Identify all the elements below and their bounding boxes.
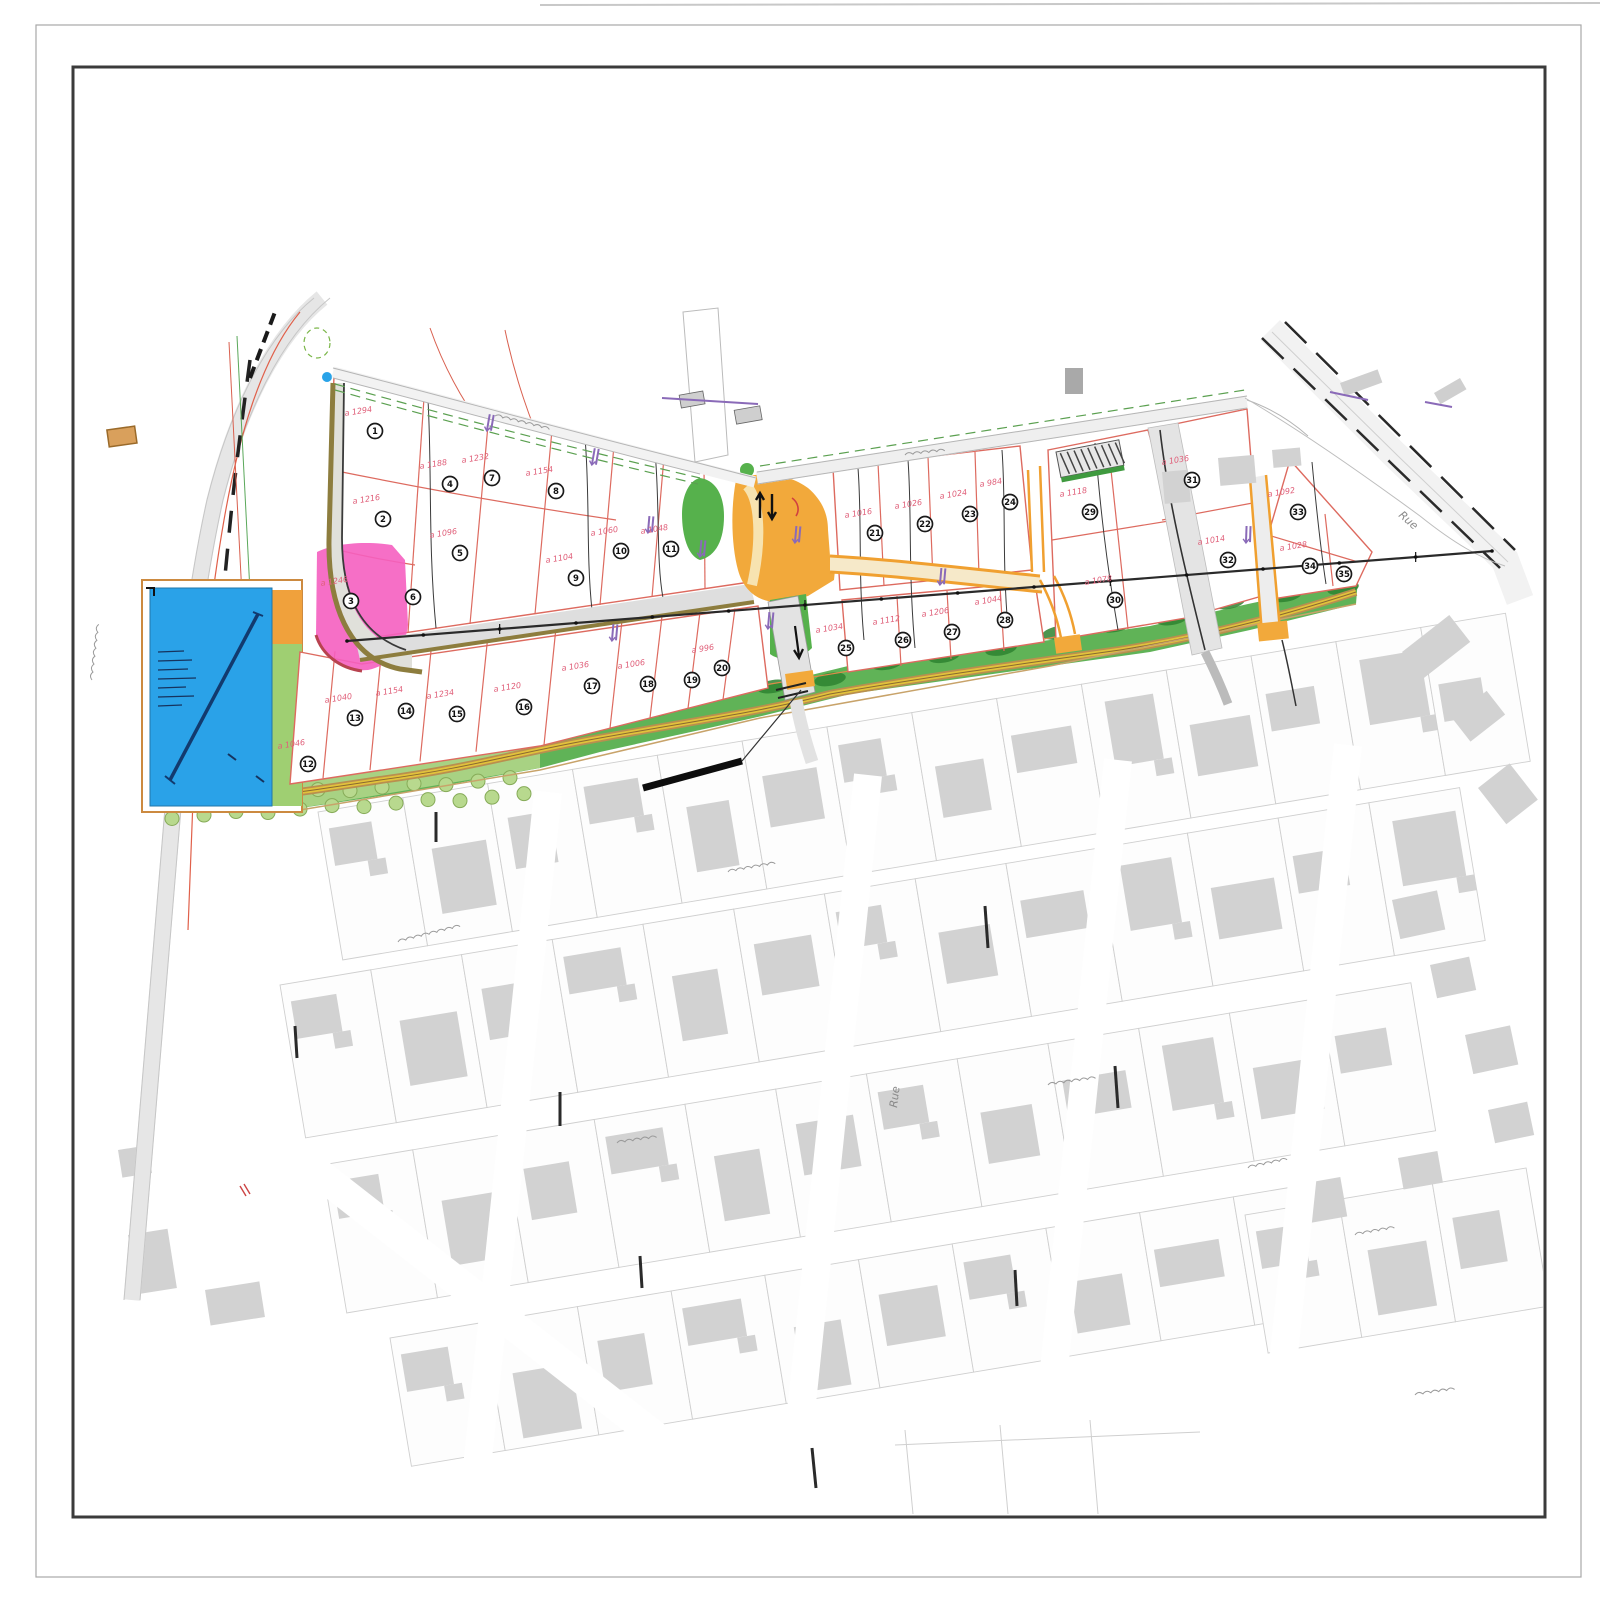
svg-text:20: 20 [716, 664, 728, 674]
svg-text:17: 17 [586, 682, 598, 692]
svg-text:6: 6 [410, 593, 416, 603]
svg-text:34: 34 [1304, 562, 1316, 572]
street-label-rue-2: Rue [1396, 508, 1421, 532]
lot-marker: 19 [685, 673, 700, 688]
svg-text:10: 10 [615, 547, 627, 557]
scan-artifact-line [540, 3, 1600, 5]
scanned-plan-sheet: Rue Rue a 12941a 12162a 12463a 11884a 10… [0, 0, 1600, 1600]
svg-text:24: 24 [1004, 498, 1016, 508]
svg-text:15: 15 [451, 710, 463, 720]
svg-text:22: 22 [919, 520, 931, 530]
svg-text:35: 35 [1338, 570, 1350, 580]
svg-text:4: 4 [447, 480, 453, 490]
north-strip-parcel [662, 308, 762, 462]
svg-text:30: 30 [1109, 596, 1121, 606]
svg-text:21: 21 [869, 529, 881, 539]
svg-text:3: 3 [348, 597, 354, 607]
svg-text:9: 9 [573, 574, 579, 584]
tree-symbol [304, 328, 330, 358]
svg-text:13: 13 [349, 714, 361, 724]
svg-text:32: 32 [1222, 556, 1234, 566]
culvert-symbol [107, 426, 137, 447]
svg-text:19: 19 [686, 676, 698, 686]
map-content: Rue Rue a 12941a 12162a 12463a 11884a 10… [90, 298, 1549, 1514]
svg-text:25: 25 [840, 644, 852, 654]
svg-text:14: 14 [400, 707, 412, 717]
svg-text:1: 1 [372, 427, 378, 437]
svg-text:29: 29 [1084, 508, 1096, 518]
svg-text:23: 23 [964, 510, 976, 520]
site-plan-map: Rue Rue a 12941a 12162a 12463a 11884a 10… [0, 0, 1600, 1600]
lot-marker: 35 [1337, 567, 1352, 582]
basin-orange-strip [272, 590, 302, 644]
svg-text:31: 31 [1186, 476, 1198, 486]
svg-text:2: 2 [380, 515, 386, 525]
lot-marker: 6 [406, 590, 421, 605]
svg-text:28: 28 [999, 616, 1011, 626]
svg-text:26: 26 [897, 636, 909, 646]
svg-text:27: 27 [946, 628, 958, 638]
svg-text:a 1034: a 1034 [815, 622, 844, 635]
retention-basin-parcel [142, 580, 302, 812]
loop-lane [1028, 466, 1044, 572]
lot-block-east3 [1262, 460, 1372, 600]
blue-point-marker [322, 372, 332, 382]
svg-text:16: 16 [518, 703, 530, 713]
red-tick [240, 1184, 250, 1196]
svg-text:5: 5 [457, 549, 463, 559]
street-label-rue-1: Rue [887, 1085, 903, 1108]
svg-text:18: 18 [642, 680, 654, 690]
svg-text:12: 12 [302, 760, 314, 770]
svg-text:8: 8 [553, 487, 559, 497]
svg-text:7: 7 [489, 474, 495, 484]
svg-text:11: 11 [665, 545, 677, 555]
svg-text:33: 33 [1292, 508, 1304, 518]
